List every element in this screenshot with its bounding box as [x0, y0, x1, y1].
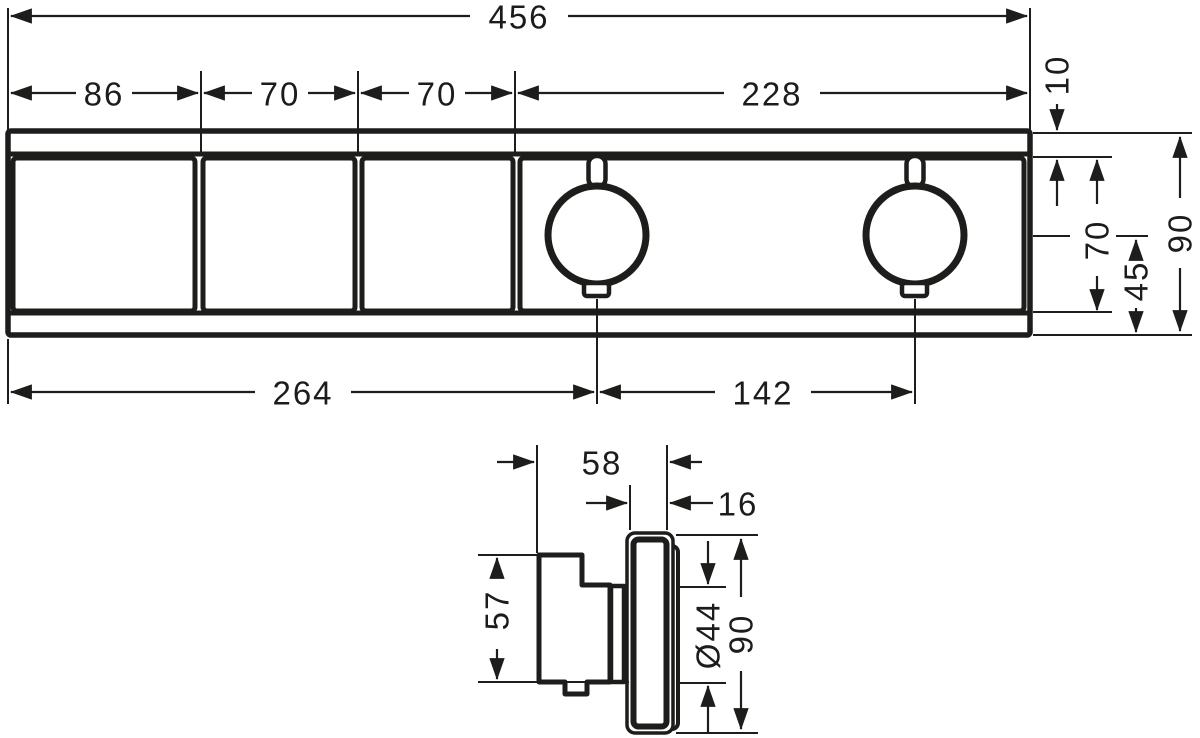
dim-top-edge-to-plate: 10 — [1039, 55, 1076, 206]
handle-2-index-slot — [907, 156, 924, 187]
dim-label-segment-4: 228 — [741, 76, 802, 113]
dim-plate-thickness: 16 — [586, 486, 758, 523]
handle-1-index-slot — [589, 156, 606, 187]
handle-2-grip-tab — [902, 283, 927, 296]
dim-label-overall-width: 456 — [488, 0, 549, 36]
plate-profile-inner — [634, 540, 667, 727]
dim-label-handle1-to-handle2: 142 — [732, 375, 793, 412]
module-1 — [13, 158, 195, 311]
dim-segment-2: 70 — [204, 76, 355, 113]
technical-drawing-canvas: 456 86 70 70 228 264 — [0, 0, 1200, 738]
dim-label-segment-2: 70 — [260, 76, 301, 113]
dim-overall-width: 456 — [11, 0, 1027, 36]
dim-plate-height: 90 — [723, 539, 760, 729]
front-view — [8, 131, 1030, 335]
side-view — [539, 533, 678, 733]
dim-label-plate-height: 90 — [723, 614, 760, 655]
dim-handle-diameter: Ø44 — [690, 541, 727, 733]
dim-label-handle-diameter: Ø44 — [690, 601, 727, 669]
module-2 — [203, 158, 355, 311]
dim-label-segment-1: 86 — [84, 76, 125, 113]
dim-label-depth: 58 — [582, 445, 623, 482]
handle-1-grip-tab — [584, 283, 609, 296]
dim-label-handle-height: 57 — [479, 590, 516, 631]
dim-plate-inner-height: 70 — [1079, 160, 1116, 310]
dim-segment-1: 86 — [11, 76, 198, 113]
dim-handle1-to-handle2: 142 — [600, 375, 912, 412]
dim-segment-4: 228 — [518, 76, 1027, 113]
handle-2-knob — [866, 186, 964, 284]
dim-label-plate-thickness: 16 — [718, 486, 759, 523]
handle-adapter-profile — [611, 586, 624, 682]
dim-label-overall-height: 90 — [1162, 213, 1199, 254]
module-3 — [362, 158, 513, 311]
dim-segment-3: 70 — [361, 76, 512, 113]
dim-depth: 58 — [497, 445, 702, 482]
technical-drawing-svg: 456 86 70 70 228 264 — [0, 0, 1200, 738]
dim-overall-height: 90 — [1162, 137, 1199, 331]
dim-label-segment-3: 70 — [417, 76, 458, 113]
dim-label-handle-center-to-bottom: 45 — [1118, 261, 1155, 302]
dim-left-to-handle1: 264 — [11, 375, 594, 412]
dim-label-plate-inner-height: 70 — [1079, 220, 1116, 261]
handle-1-knob — [548, 186, 646, 284]
handle-profile — [539, 555, 610, 694]
dim-handle-height: 57 — [479, 558, 516, 679]
dim-label-left-to-handle1: 264 — [272, 375, 333, 412]
dim-handle-center-to-bottom: 45 — [1118, 240, 1155, 332]
dim-label-top-edge-to-plate: 10 — [1039, 55, 1076, 96]
